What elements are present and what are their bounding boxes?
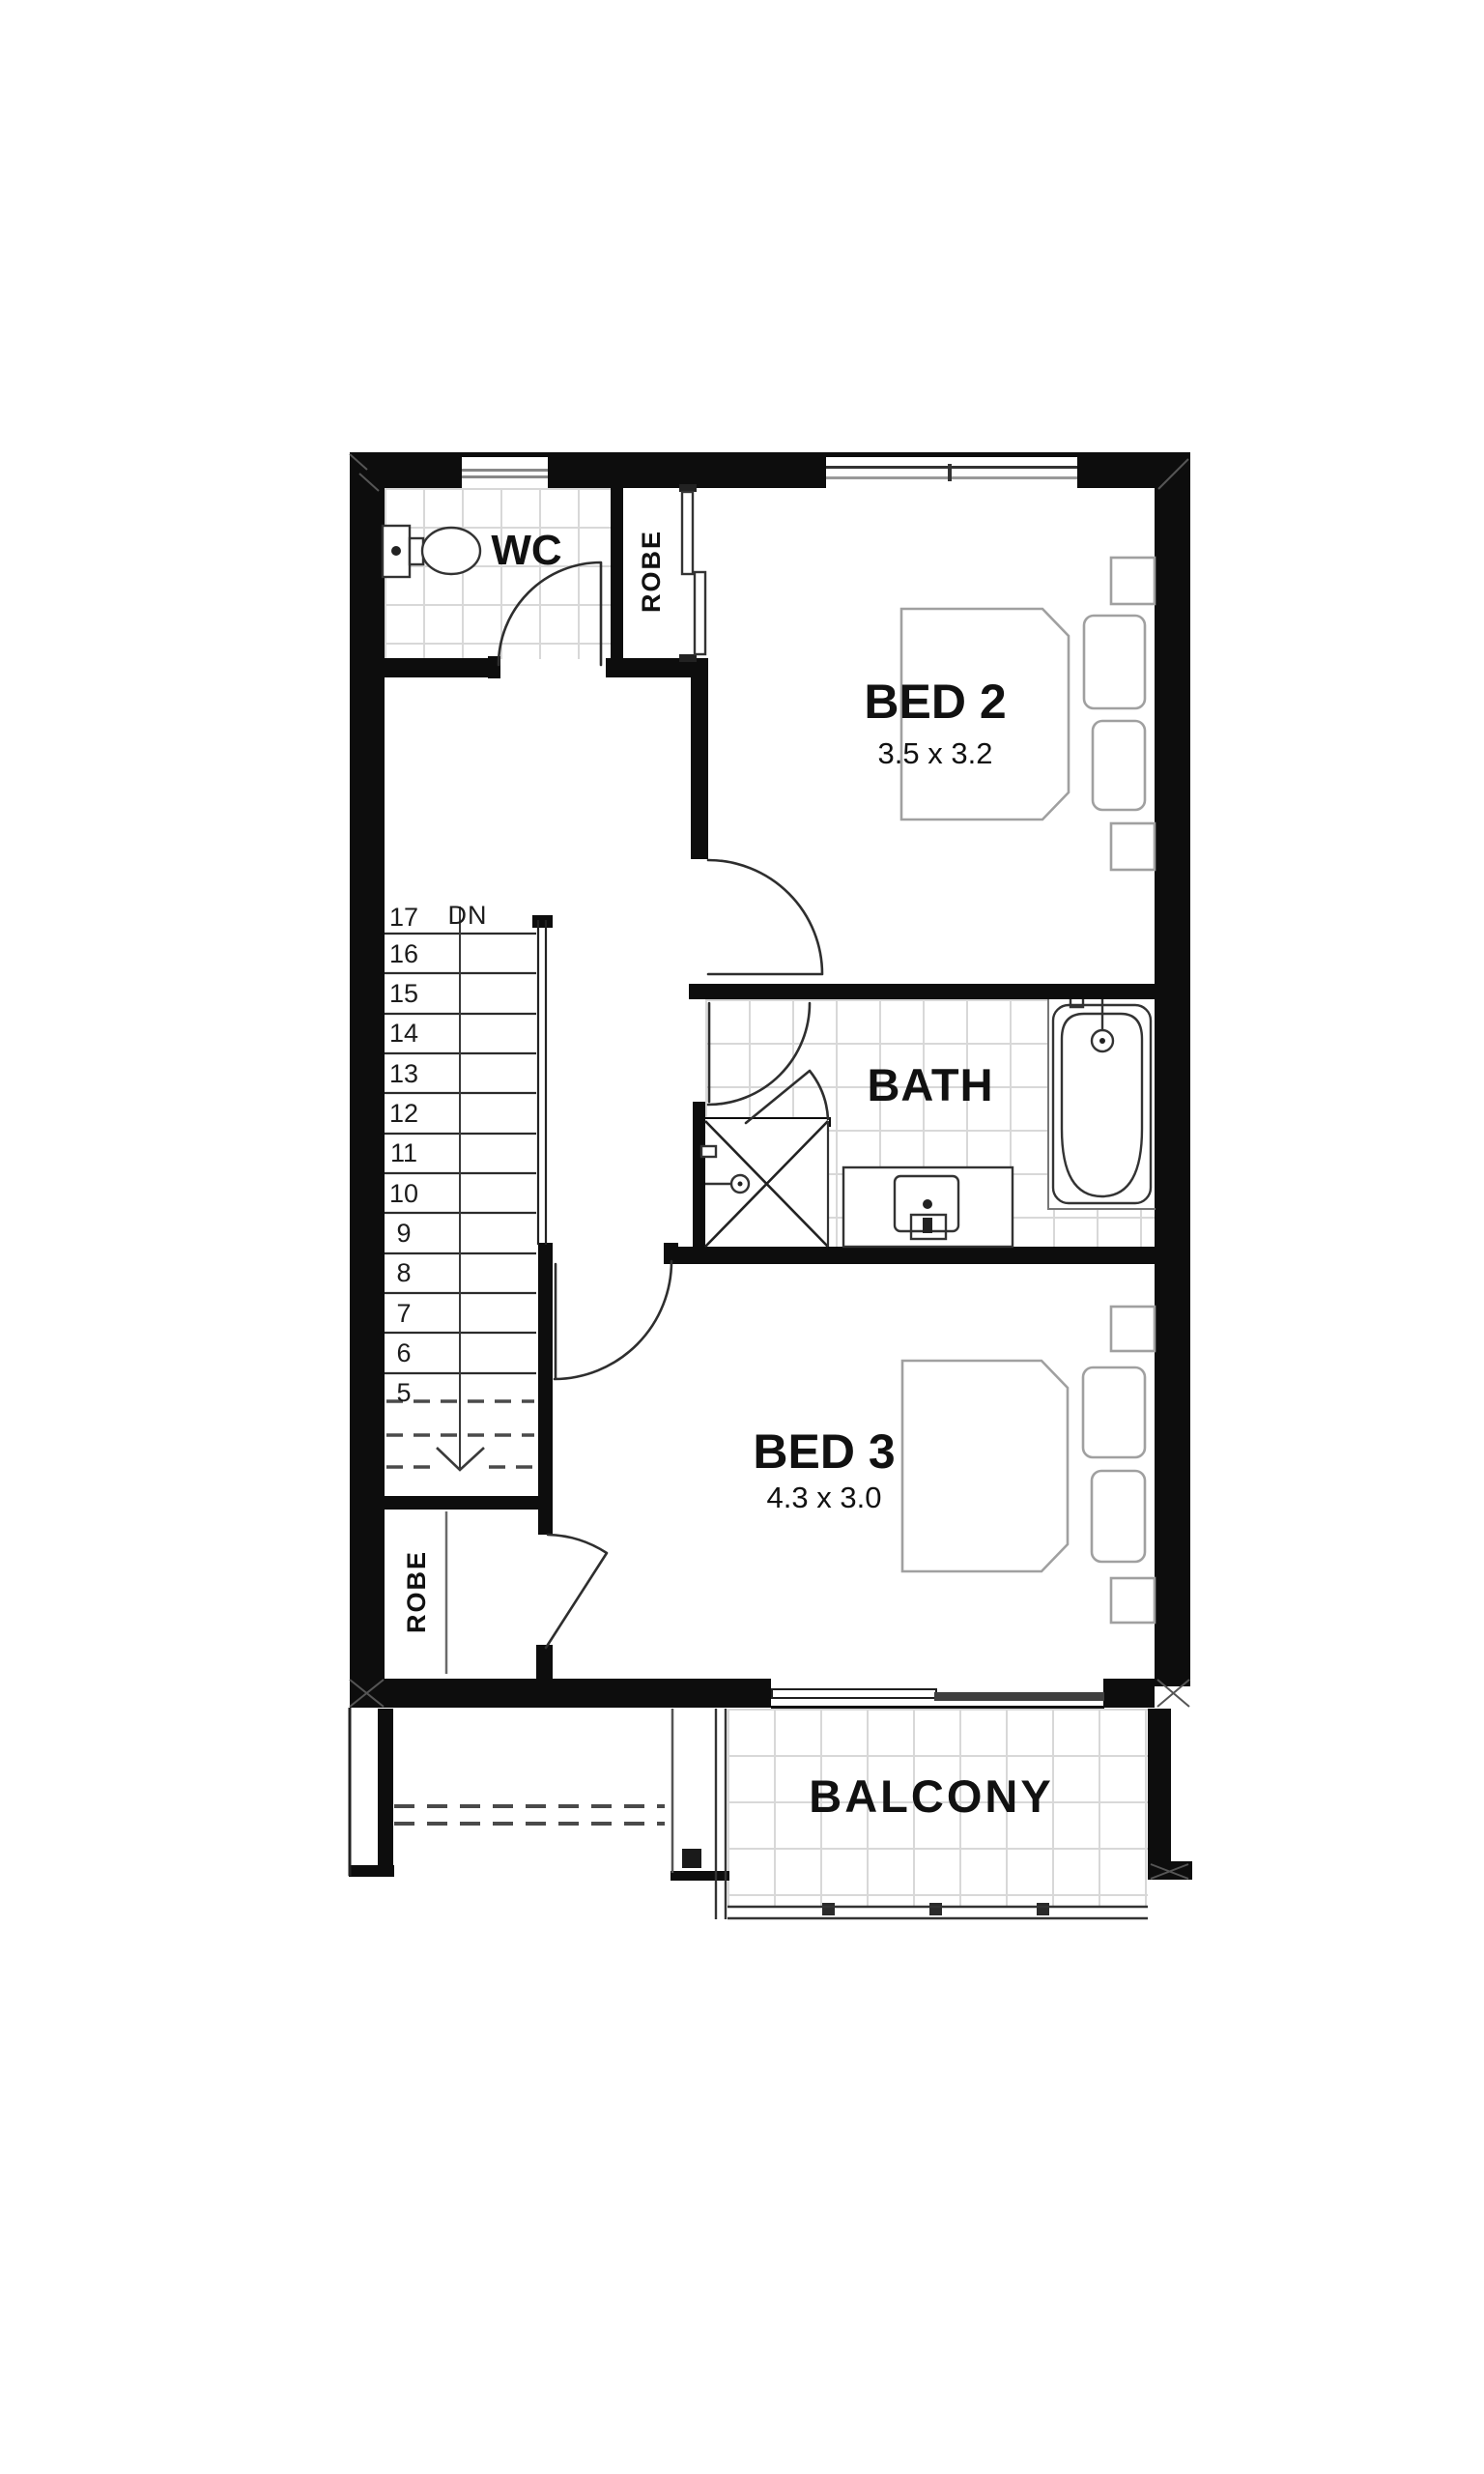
room-label-bath: BATH bbox=[814, 1059, 1046, 1109]
bed3-pillow bbox=[1092, 1471, 1145, 1562]
bed2-side-table bbox=[1111, 558, 1155, 604]
stair-direction-arrow bbox=[437, 906, 484, 1470]
stair-step: 14 bbox=[383, 1018, 425, 1049]
wc-door bbox=[499, 562, 601, 665]
room-dims-bed3: 4.3 x 3.0 bbox=[718, 1481, 930, 1515]
stair-step: 5 bbox=[383, 1377, 425, 1408]
stair-step: 13 bbox=[383, 1058, 425, 1089]
lower-level-outline bbox=[350, 1708, 672, 1876]
stair-step: 9 bbox=[383, 1218, 425, 1249]
bed2-pillow bbox=[1093, 721, 1145, 810]
plan-linework bbox=[0, 0, 1484, 2474]
room-label-robe-upper: ROBE bbox=[603, 523, 699, 619]
stair-step: 6 bbox=[383, 1338, 425, 1368]
shower-tap bbox=[701, 1146, 716, 1157]
bed2-pillow bbox=[1084, 616, 1145, 708]
bed2-side-table bbox=[1111, 823, 1155, 870]
bed3-side-table bbox=[1111, 1578, 1155, 1623]
stair-step-17: 17 bbox=[383, 902, 425, 933]
stair-step: 8 bbox=[383, 1257, 425, 1288]
vanity bbox=[843, 1167, 1013, 1247]
room-label-balcony: BALCONY bbox=[767, 1769, 1096, 1822]
room-label-robe-lower: ROBE bbox=[368, 1543, 465, 1640]
floor-plan: WC ROBE BED 2 3.5 x 3.2 BATH BED 3 4.3 x… bbox=[0, 0, 1484, 2474]
room-label-wc: WC bbox=[471, 526, 582, 576]
bed2-door bbox=[708, 860, 822, 974]
vanity-tap bbox=[923, 1199, 932, 1209]
stair-direction-dn: DN bbox=[437, 900, 499, 931]
stair-step: 16 bbox=[383, 938, 425, 969]
stair-handrail bbox=[538, 920, 546, 1245]
toilet bbox=[383, 526, 480, 577]
room-dims-bed2: 3.5 x 3.2 bbox=[829, 736, 1042, 771]
stair-step: 15 bbox=[383, 978, 425, 1009]
bed3-door bbox=[555, 1261, 671, 1379]
stair-step: 10 bbox=[383, 1178, 425, 1209]
bed3-side-table bbox=[1111, 1307, 1155, 1351]
stair-step: 12 bbox=[383, 1098, 425, 1129]
bath-door bbox=[708, 1003, 810, 1105]
room-label-bed3: BED 3 bbox=[708, 1424, 940, 1479]
robe-lower-door bbox=[546, 1535, 607, 1648]
stair-step: 7 bbox=[383, 1298, 425, 1329]
bed3-pillow bbox=[1083, 1367, 1145, 1457]
bed3-furniture bbox=[902, 1307, 1155, 1623]
stair-step: 11 bbox=[383, 1137, 425, 1168]
room-label-bed2: BED 2 bbox=[819, 675, 1051, 729]
